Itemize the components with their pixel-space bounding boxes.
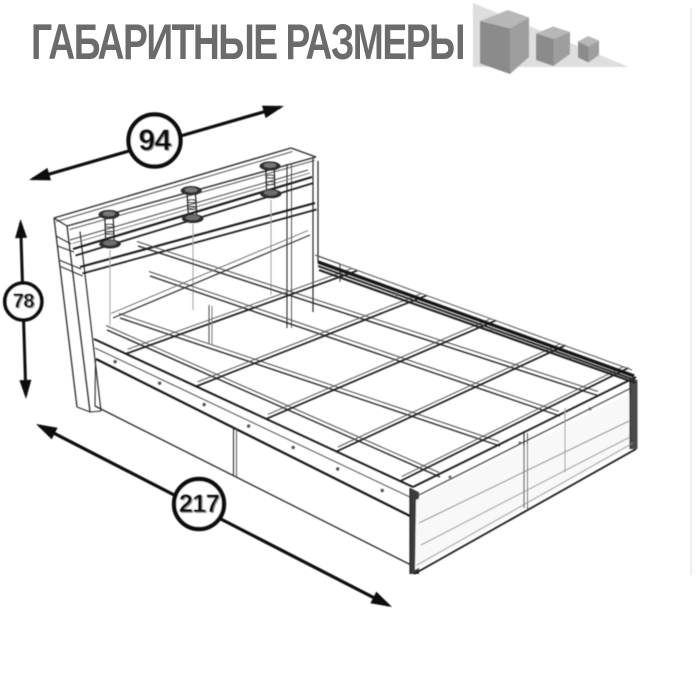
- svg-text:94: 94: [138, 124, 171, 157]
- svg-text:78: 78: [13, 291, 35, 313]
- svg-text:217: 217: [179, 490, 219, 518]
